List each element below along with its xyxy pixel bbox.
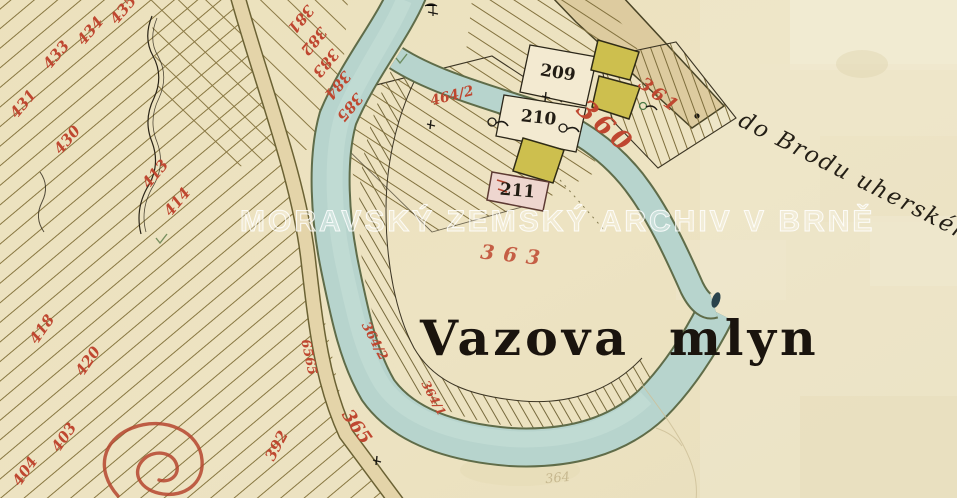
map-title-vazova-mlyn: Vazova mlyn: [419, 309, 820, 367]
cadastral-map-canvas: 433 434 435 431 430 413 414 381 382 383 …: [0, 0, 957, 498]
cadastral-map-screenshot: 433 434 435 431 430 413 414 381 382 383 …: [0, 0, 957, 498]
house-number-211: 211: [499, 180, 536, 203]
archive-watermark: MORAVSKÝ ZEMSKÝ ARCHIV V BRNĚ: [240, 204, 875, 238]
pencil-number-364: 364: [545, 470, 571, 488]
house-number-210: 210: [520, 106, 558, 130]
